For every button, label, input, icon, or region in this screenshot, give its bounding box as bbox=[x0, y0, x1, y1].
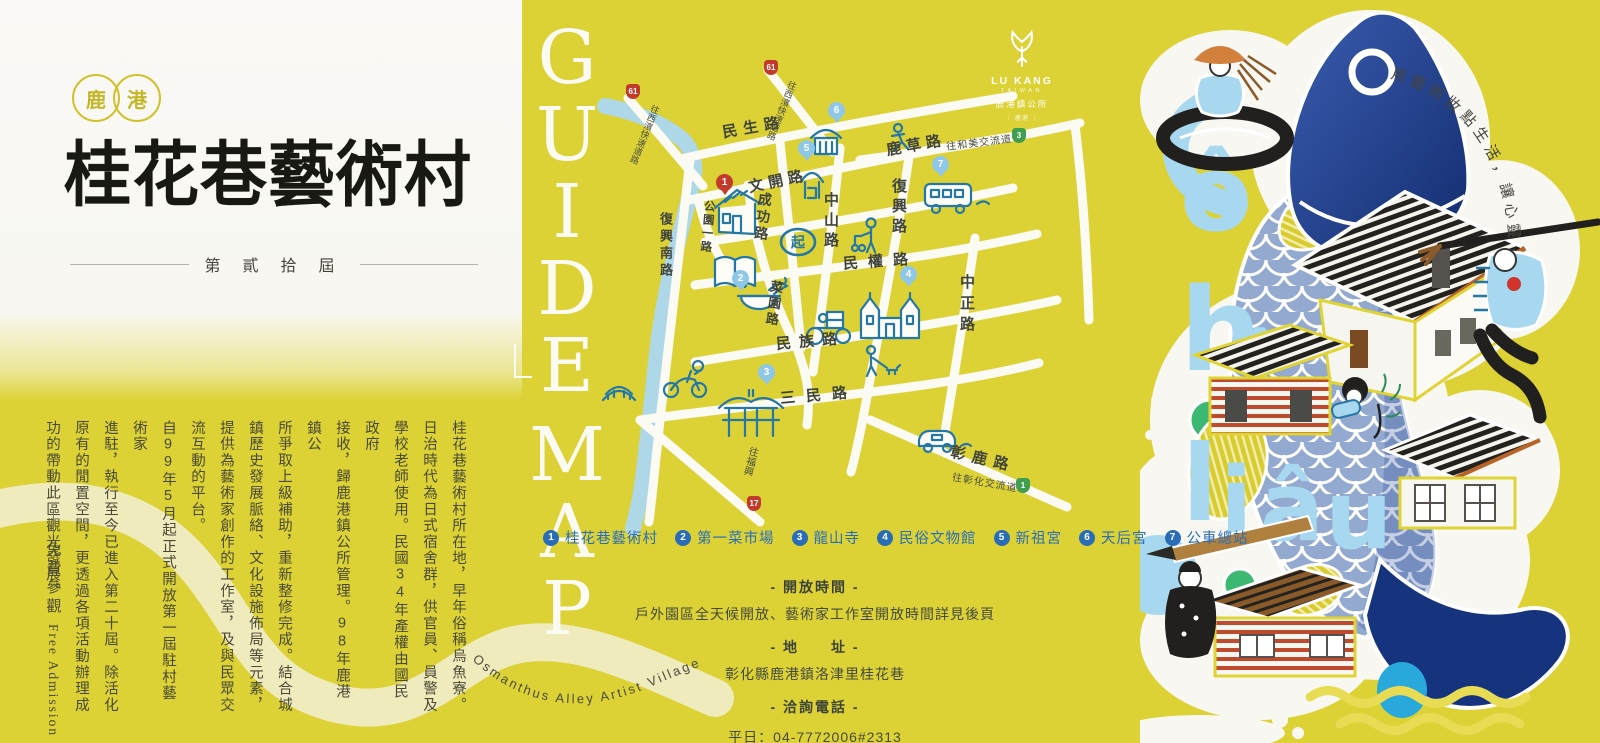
street-label: 中正路 bbox=[956, 274, 977, 337]
bridge-icon bbox=[603, 387, 635, 400]
map-pin-4: 4 bbox=[900, 266, 917, 283]
desc-column: 鎮歷史發展脈絡、文化設施佈局等元素， bbox=[240, 420, 269, 716]
legend-item: 2 第一菜市場 bbox=[675, 527, 775, 548]
tianhou-temple-icon bbox=[811, 130, 841, 154]
desc-column: 日治時代為日式宿舍群，供官員、員警及 bbox=[414, 420, 443, 716]
legend-label: 龍山寺 bbox=[814, 527, 861, 548]
legend-label: 公車總站 bbox=[1187, 527, 1249, 548]
desc-column: 接收，歸鹿港鎮公所管理。98年鹿港鎮公 bbox=[298, 420, 356, 716]
badge-char: 港 bbox=[113, 74, 161, 122]
map-pin-5: 5 bbox=[798, 140, 815, 157]
start-marker-label: 起 bbox=[790, 234, 806, 250]
free-admission-block: 免費參觀 Free Admission bbox=[40, 510, 66, 743]
guide-letter: U bbox=[527, 97, 607, 174]
legend-label: 民俗文物館 bbox=[899, 527, 977, 548]
map-pin-7: 7 bbox=[932, 156, 949, 173]
edition-label: 第 貳 拾 屆 bbox=[205, 252, 344, 276]
map-pin-1: 1 bbox=[716, 174, 733, 191]
legend-number: 2 bbox=[675, 530, 691, 546]
logo-line4: ｜ 鹿港 ｜ bbox=[972, 113, 1072, 122]
legend-item: 6 天后宮 bbox=[1079, 527, 1148, 548]
word-letter: u bbox=[1325, 461, 1393, 571]
legend-item: 5 新祖宮 bbox=[994, 527, 1063, 548]
legend-number: 1 bbox=[543, 530, 559, 546]
page-title: 桂花巷藝術村 bbox=[64, 136, 484, 214]
legend-item: 4 民俗文物館 bbox=[877, 527, 977, 548]
logo-line3: 鹿港鎮公所 bbox=[972, 98, 1072, 110]
word-letter: â bbox=[1260, 453, 1324, 563]
desc-column: 進駐，執行至今已進入第二十屆。除活化 bbox=[95, 420, 124, 716]
longshan-temple-icon bbox=[719, 390, 783, 436]
legend-number: 4 bbox=[877, 530, 893, 546]
logo-line2: TAIWAN bbox=[972, 88, 1072, 94]
brochure-canvas: 鹿 港 桂花巷藝術村 第 貳 拾 屆 桂花巷藝術村所在地，早年俗稱烏魚寮。 日治… bbox=[0, 0, 1600, 743]
desc-column: 自99年5月起正式開放第一屆駐村藝術家 bbox=[124, 420, 182, 716]
deer-icon bbox=[1001, 26, 1043, 68]
legend-label: 新祖宮 bbox=[1016, 527, 1063, 548]
river bbox=[605, 106, 694, 528]
legend-number: 3 bbox=[792, 530, 808, 546]
highway-shield: 61 bbox=[764, 60, 778, 75]
map-pin-2: 2 bbox=[732, 270, 749, 287]
map-pin-6: 6 bbox=[828, 102, 845, 119]
desc-column: 提供為藝術家創作的工作室，及與民眾交 bbox=[211, 420, 240, 716]
desc-column: 原有的閒置空間，更透過各項活動辦理成 bbox=[66, 420, 95, 716]
legend-number: 6 bbox=[1079, 530, 1095, 546]
stroller-person-icon bbox=[852, 219, 876, 253]
folk-museum-icon bbox=[861, 293, 919, 338]
rule-left bbox=[70, 264, 189, 265]
curved-caption: Osmanthus Alley Artist Village bbox=[450, 608, 780, 738]
street-label: 中山路 bbox=[820, 192, 841, 252]
legend-label: 第一菜市場 bbox=[697, 527, 775, 548]
lukang-township-logo: LU KANG TAIWAN 鹿港鎮公所 ｜ 鹿港 ｜ bbox=[972, 26, 1072, 122]
caption-textpath: Osmanthus Alley Artist Village bbox=[470, 651, 703, 706]
desc-column: 所爭取上級補助，重新整修完成。結合城 bbox=[269, 420, 298, 716]
village-description: 桂花巷藝術村所在地，早年俗稱烏魚寮。 日治時代為日式宿舍群，供官員、員警及 學校… bbox=[37, 420, 472, 716]
legend-item: 1 桂花巷藝術村 bbox=[543, 527, 658, 548]
legend-number: 5 bbox=[994, 530, 1010, 546]
guide-letter: M bbox=[527, 417, 607, 494]
street-label: 復興南路 bbox=[656, 212, 675, 280]
map-legend: 1 桂花巷藝術村 2 第一菜市場 3 龍山寺 4 民俗文物館 5 新祖宮 6 天… bbox=[543, 527, 1249, 548]
guide-letter: G bbox=[527, 20, 607, 97]
highway-shield: 61 bbox=[626, 84, 640, 99]
desc-column: 流互動的平台。 bbox=[182, 420, 211, 716]
legend-item: 7 公車總站 bbox=[1165, 527, 1249, 548]
edition-row: 第 貳 拾 屆 bbox=[70, 252, 478, 276]
caption-text: Osmanthus Alley Artist Village bbox=[470, 651, 703, 706]
legend-number: 7 bbox=[1165, 530, 1181, 546]
logo-line1: LU KANG bbox=[972, 75, 1072, 87]
guide-letter: E bbox=[527, 328, 607, 405]
guide-letter: I bbox=[527, 174, 607, 251]
free-admission-zh: 免費參觀 bbox=[43, 541, 64, 617]
map-pin-3: 3 bbox=[758, 364, 775, 381]
street-label: 復興路 bbox=[888, 178, 909, 238]
word-letter: ô bbox=[1180, 133, 1252, 255]
desc-column: 學校老師使用。民國34年產權由國民政府 bbox=[356, 420, 414, 716]
guide-letter: D bbox=[527, 251, 607, 328]
fish-illustration: ô h î l i â u bbox=[1140, 0, 1600, 743]
free-admission-en: Free Admission bbox=[45, 624, 61, 737]
highway-shield: 1 bbox=[1016, 478, 1030, 493]
guide-map-title: G U I D E M A P bbox=[527, 20, 607, 648]
lukang-badge: 鹿 港 bbox=[72, 74, 161, 122]
hours-title: - 開放時間 - bbox=[590, 577, 1040, 597]
rule-right bbox=[360, 264, 479, 265]
legend-item: 3 龍山寺 bbox=[792, 527, 861, 548]
highway-shield: 3 bbox=[1012, 128, 1026, 143]
highway-shield: 17 bbox=[747, 496, 761, 511]
legend-label: 桂花巷藝術村 bbox=[565, 527, 658, 548]
legend-label: 天后宮 bbox=[1101, 527, 1148, 548]
rule-top bbox=[53, 510, 54, 534]
